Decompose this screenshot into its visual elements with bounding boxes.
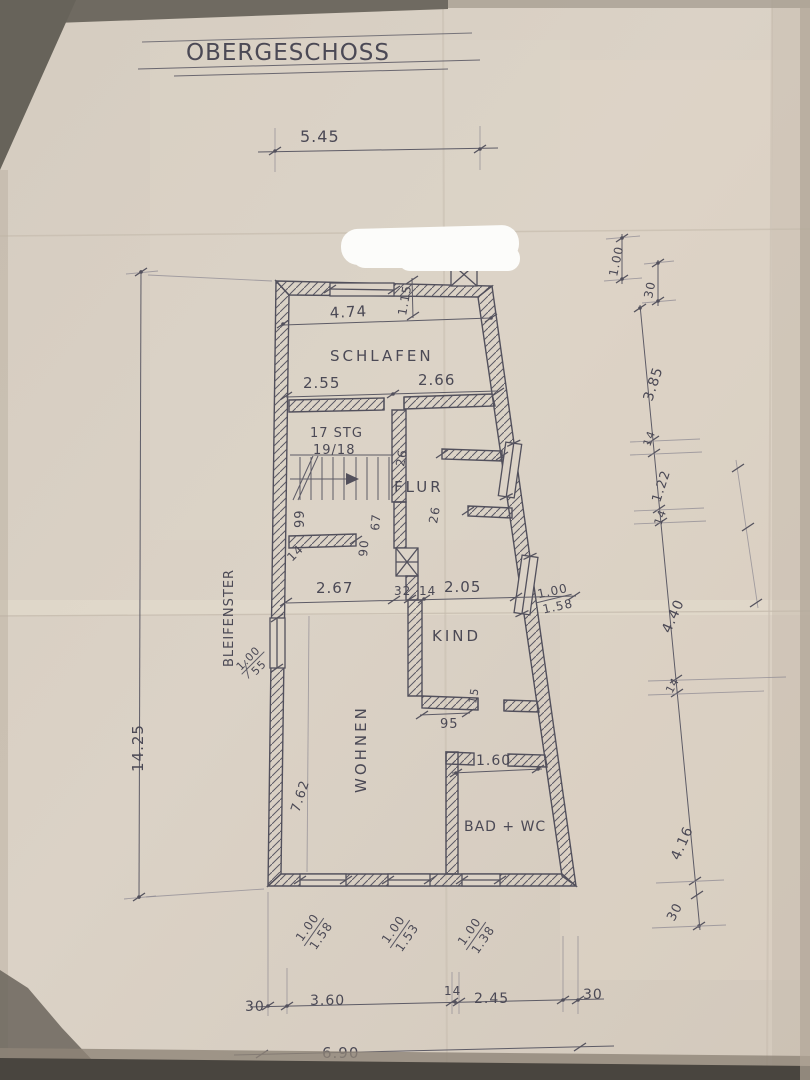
- room-label-kind: KIND: [432, 627, 481, 645]
- dim-schlafen-left: 2.55: [303, 374, 340, 392]
- floorplan-drawing: OBERGESCHOSS 5.45 14.25: [0, 0, 810, 1080]
- dim-bottom-3: 14: [444, 984, 461, 998]
- dim-kind-wall: 15: [466, 687, 482, 705]
- dim-shelf-bottom: 26: [426, 505, 443, 524]
- scanned-floorplan-page: OBERGESCHOSS 5.45 14.25: [0, 0, 810, 1080]
- window-left: [270, 614, 285, 672]
- room-label-bad-wc: BAD + WC: [464, 819, 546, 835]
- window-bottom-1: [294, 874, 352, 886]
- dim-mid-3: 14: [419, 584, 436, 598]
- duct-shaft: [396, 548, 418, 576]
- room-label-wohnen: WOHNEN: [352, 705, 370, 793]
- dim-mid-2: 32: [394, 584, 411, 598]
- window-bottom-2: [382, 874, 436, 886]
- dim-mid-1: 2.67: [316, 579, 353, 597]
- dim-shelf-top: 26: [393, 448, 410, 467]
- window-bottom-3: [456, 874, 506, 886]
- note-bleifenster: BLEIFENSTER: [222, 569, 237, 667]
- redaction-blob: [341, 225, 520, 271]
- dim-bad-width: 1.60: [476, 753, 511, 769]
- dim-upper-inner-width: 4.74: [329, 302, 367, 322]
- dim-bottom-1: 30: [245, 999, 265, 1015]
- dim-bottom-2: 3.60: [310, 993, 345, 1009]
- dim-top-width: 5.45: [300, 127, 340, 146]
- dim-schlafen-right: 2.66: [418, 371, 455, 389]
- dim-total-height: 14.25: [129, 724, 147, 772]
- dim-flur-h1: 99: [293, 509, 308, 528]
- window-top: [324, 283, 400, 296]
- dim-flur-h3: 90: [356, 539, 371, 557]
- dim-kind-door: 95: [440, 717, 459, 732]
- dim-bottom-4: 2.45: [474, 991, 509, 1007]
- stair-count: 17 STG: [310, 426, 363, 441]
- dim-mid-4: 2.05: [444, 578, 481, 596]
- room-label-flur: FLUR: [394, 478, 444, 496]
- dim-flur-h2: 67: [368, 513, 383, 531]
- dim-bottom-5: 30: [583, 987, 603, 1003]
- page-title: OBERGESCHOSS: [186, 40, 390, 66]
- room-label-schlafen: SCHLAFEN: [330, 347, 434, 365]
- stair-ratio: 19/18: [313, 443, 355, 458]
